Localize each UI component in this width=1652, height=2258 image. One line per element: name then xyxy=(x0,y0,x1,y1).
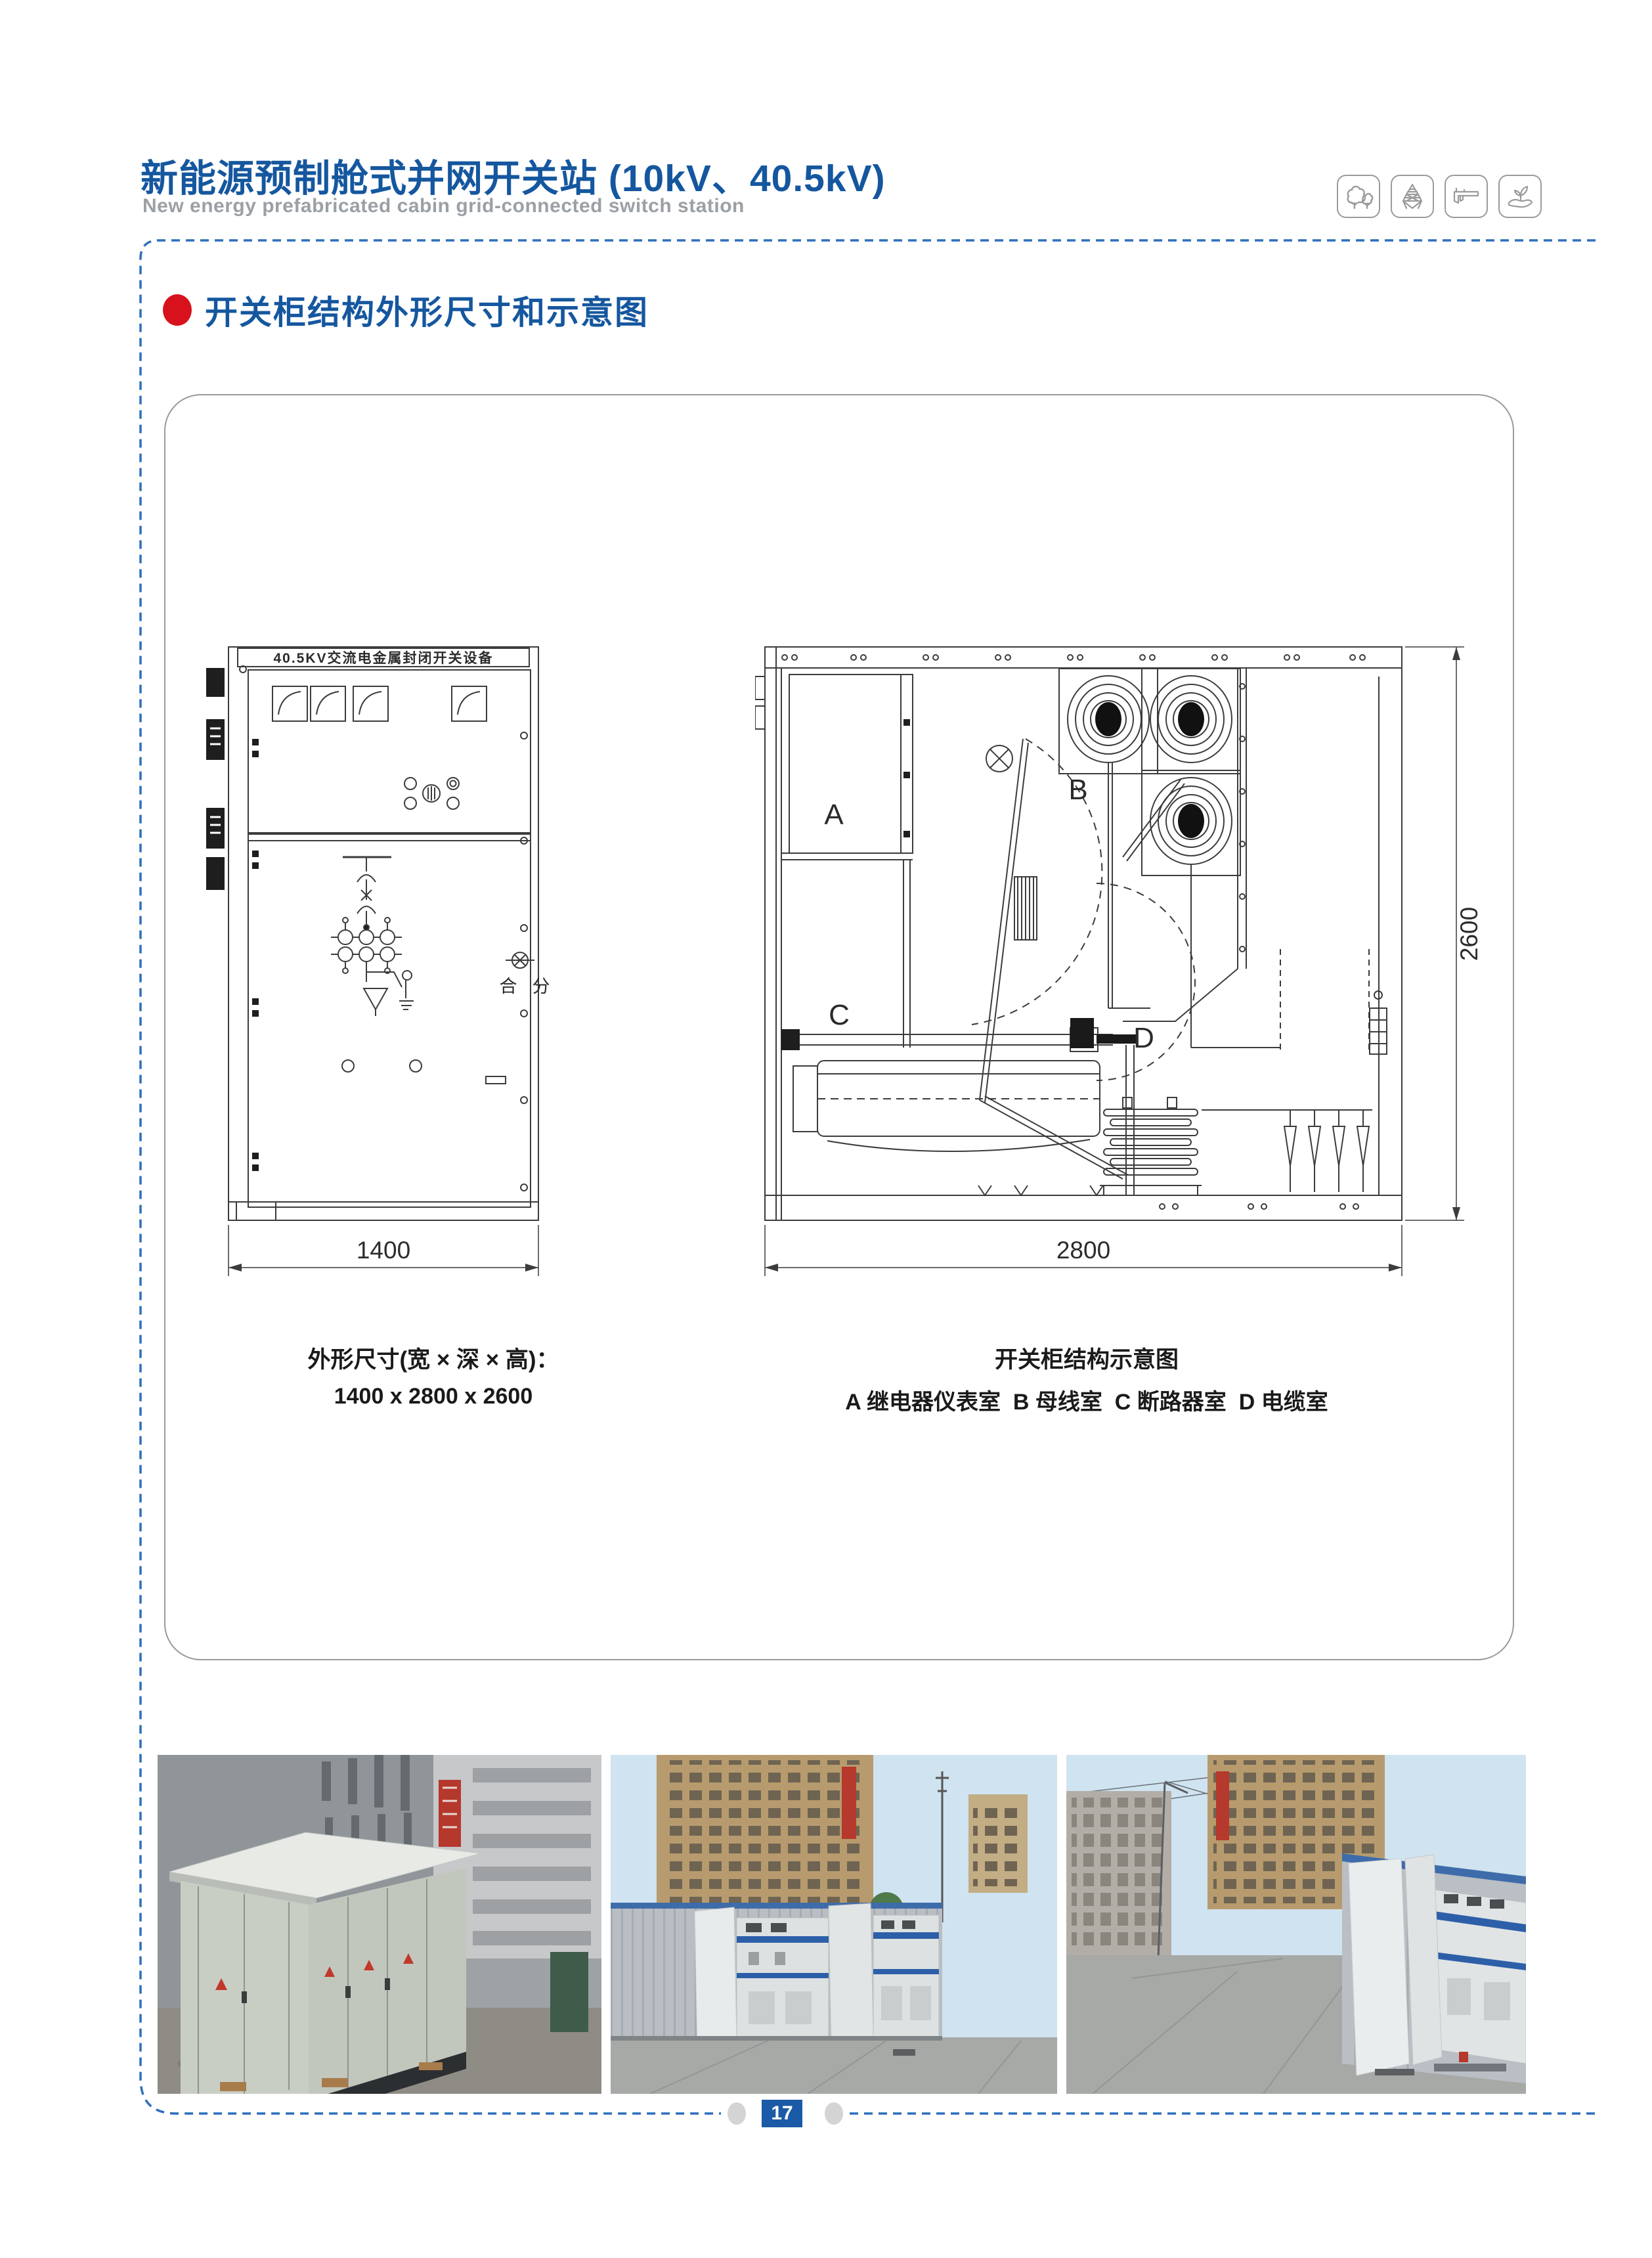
caliper-icon xyxy=(1445,175,1488,218)
nameplate-text: 40.5KV交流电金属封闭开关设备 xyxy=(273,650,493,666)
one-line-diagram xyxy=(331,857,414,1016)
dimensions-caption-title: 外形尺寸(宽 × 深 × 高)： xyxy=(171,1341,696,1375)
section-view-caption: 开关柜结构示意图 A 继电器仪表室 B 母线室 C 断路器室 D 电缆室 xyxy=(791,1341,1382,1416)
switchgear-section-view-drawing: A B C D 2800 2600 xyxy=(755,640,1536,1297)
breaker-cylinder xyxy=(793,1061,1100,1151)
lower-door xyxy=(248,841,531,1207)
door-handle-left xyxy=(342,1060,354,1072)
open-door-panel xyxy=(695,1907,737,2052)
hand-plant-icon xyxy=(1498,175,1542,218)
trees-icon xyxy=(1337,175,1380,218)
switchgear-front-view-drawing: 40.5KV交流电金属封闭开关设备 合 分 1400 xyxy=(197,640,552,1297)
footer-dot-left xyxy=(728,2102,746,2125)
structure-caption-legend: A 继电器仪表室 B 母线室 C 断路器室 D 电缆室 xyxy=(791,1384,1382,1416)
page-subtitle: New energy prefabricated cabin grid-conn… xyxy=(142,195,745,217)
red-bullet-icon xyxy=(163,294,192,326)
open-door-panel xyxy=(829,1903,873,2048)
busbar-coil-1 xyxy=(1059,669,1158,774)
compartment-a-box xyxy=(789,675,901,853)
green-cabinet xyxy=(550,1952,588,2032)
container-open-doors-photo xyxy=(611,1755,1057,2094)
busbar-coil-2 xyxy=(1142,669,1240,774)
enclosure-outline xyxy=(765,647,1402,1220)
power-tower-icon xyxy=(1391,175,1434,218)
red-building-sign xyxy=(1216,1771,1229,1840)
red-building-sign xyxy=(842,1767,856,1839)
top-rail-bolts xyxy=(782,655,1365,660)
cabin-exterior-photo xyxy=(158,1755,601,2094)
container-switchgear-photo xyxy=(1066,1755,1526,2094)
front-width-dim-text: 1400 xyxy=(357,1237,410,1264)
compartment-a-label: A xyxy=(824,799,844,831)
front-view-caption: 外形尺寸(宽 × 深 × 高)： 1400 x 2800 x 2600 xyxy=(171,1341,696,1409)
section-height-dim-text: 2600 xyxy=(1456,907,1483,961)
indicator-cluster xyxy=(404,778,459,809)
busbar-coil-3 xyxy=(1142,770,1240,875)
open-door-panel xyxy=(1349,1859,1409,2075)
page-number: 17 xyxy=(771,2102,793,2125)
header-icon-row xyxy=(1337,175,1542,218)
hinge-blocks xyxy=(206,668,225,890)
door-handle-right xyxy=(410,1060,422,1072)
close-label: 合 xyxy=(500,977,517,996)
page-number-badge: 17 xyxy=(762,2100,802,2127)
footer-dot-right xyxy=(825,2102,843,2125)
cabinet-outline xyxy=(228,647,538,1220)
open-label: 分 xyxy=(533,977,550,996)
compartment-d-label: D xyxy=(1133,1022,1154,1054)
section-heading-text: 开关柜结构外形尺寸和示意图 xyxy=(205,286,649,334)
section-heading: 开关柜结构外形尺寸和示意图 xyxy=(163,286,649,334)
page-title: 新能源预制舱式并网开关站 (10kV、40.5kV) xyxy=(141,148,886,202)
meter-gauges xyxy=(272,686,487,721)
insulator-stack xyxy=(1100,1097,1202,1195)
dimensions-caption-value: 1400 x 2800 x 2600 xyxy=(171,1384,696,1409)
switchgear-cabinets xyxy=(1434,1890,1526,2064)
structure-caption-title: 开关柜结构示意图 xyxy=(791,1341,1382,1375)
door-slot xyxy=(486,1076,506,1084)
compartment-c-label: C xyxy=(829,999,850,1031)
section-width-dim-text: 2800 xyxy=(1056,1237,1110,1264)
compartment-b-label: B xyxy=(1068,774,1087,806)
bottom-rail-bolts xyxy=(1160,1204,1359,1209)
